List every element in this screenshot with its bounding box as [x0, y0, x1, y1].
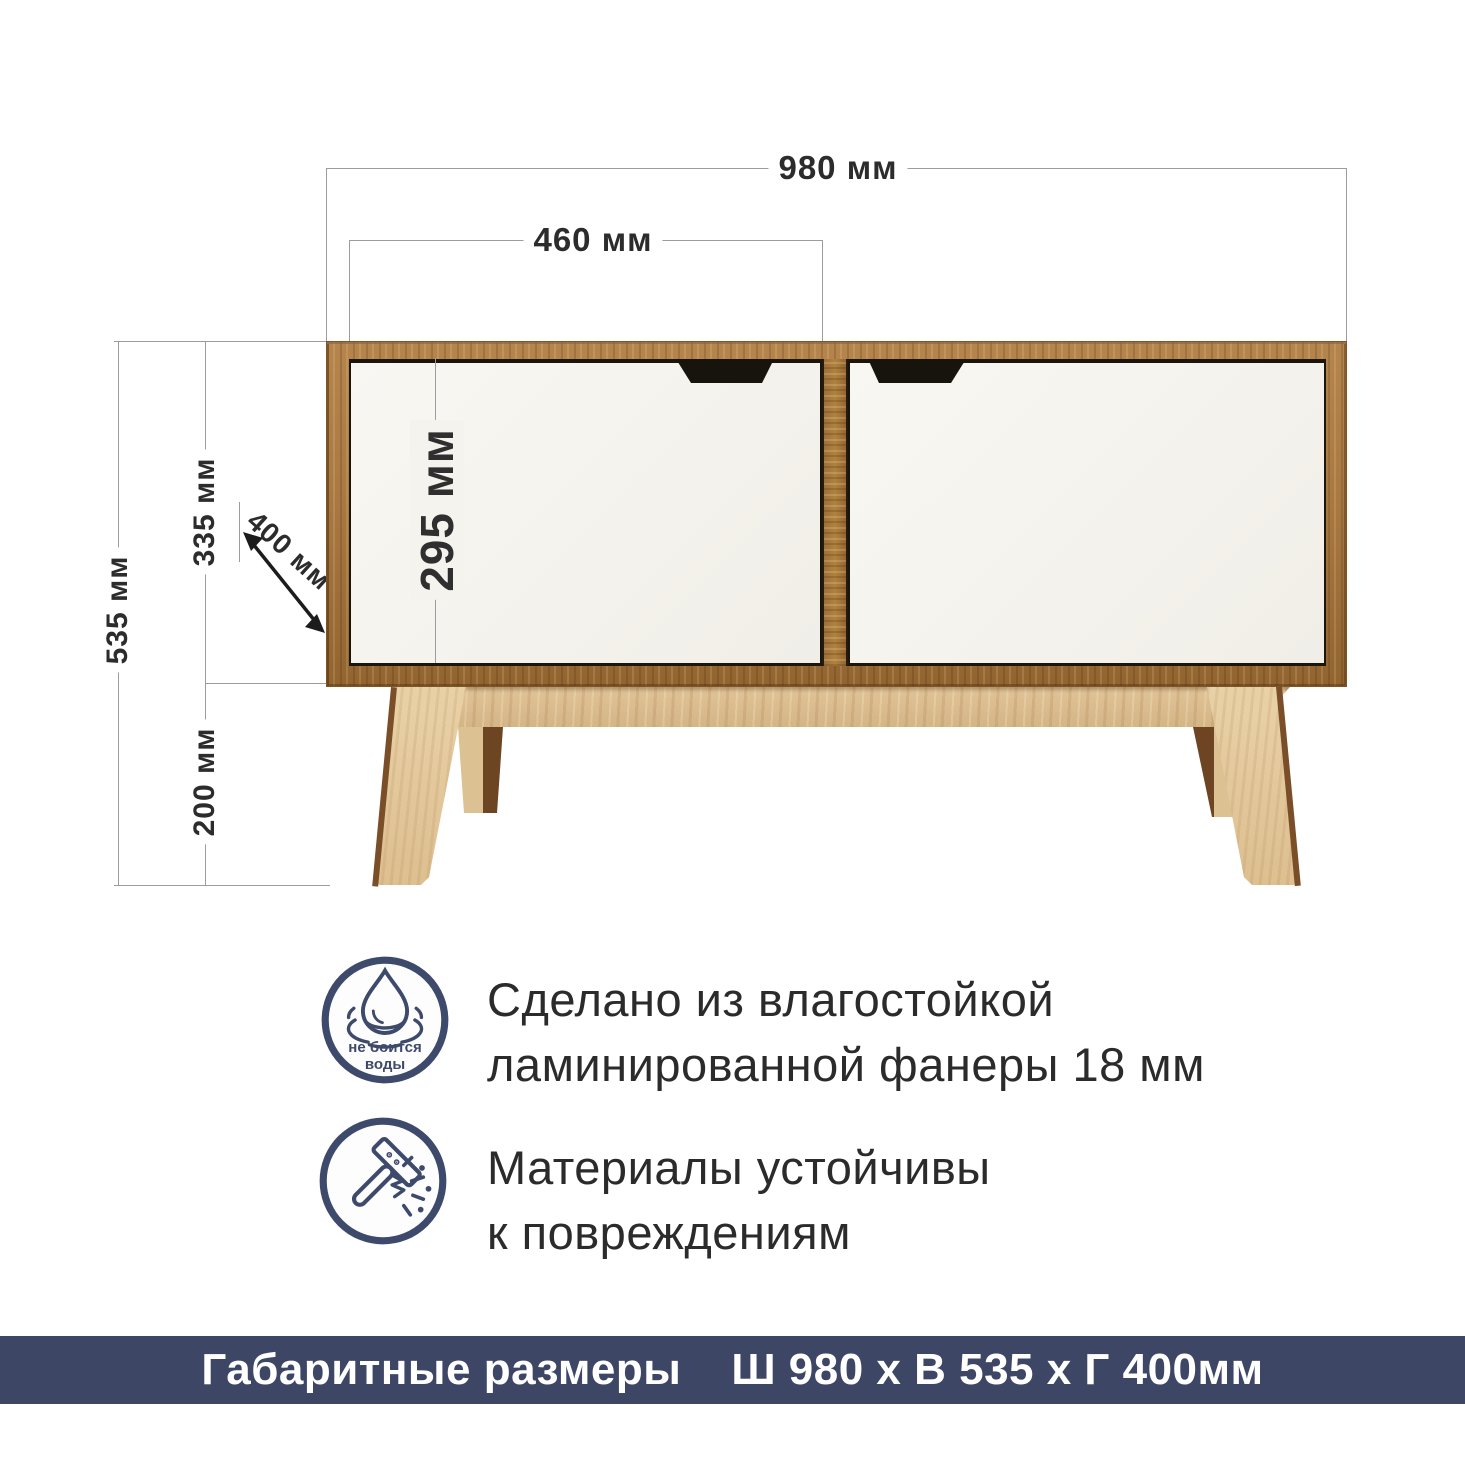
dim-label-body-height: 335 мм	[188, 450, 222, 575]
rear-leg-left	[458, 727, 503, 813]
feature-water-line1: Сделано из влагостойкой	[487, 972, 1054, 1027]
feature-water-line2: ламинированной фанеры 18 мм	[487, 1037, 1205, 1092]
water-badge-line2: воды	[320, 1056, 450, 1073]
water-drop-icon: не боится воды	[320, 955, 450, 1085]
door-right	[850, 363, 1324, 663]
feature-impact-line1: Материалы устойчивы	[487, 1140, 991, 1195]
dim-tick-floor	[114, 885, 330, 886]
dim-tick-top	[114, 341, 326, 342]
dim-tick-total-width-left	[326, 168, 327, 341]
footer-value: Ш 980 х В 535 х Г 400мм	[731, 1345, 1263, 1395]
water-badge-line1: не боится	[320, 1039, 450, 1056]
footer-label: Габаритные размеры	[201, 1345, 681, 1395]
dim-tick-total-width-right	[1346, 168, 1347, 341]
product-infographic: 980 мм 460 мм 535 мм 335 мм 200 мм 400 м…	[0, 0, 1465, 1465]
dim-label-door-width: 460 мм	[523, 221, 662, 259]
cabinet-frame	[326, 341, 1347, 687]
dim-tick-body-bottom	[205, 683, 326, 684]
door-handle-right	[868, 359, 966, 383]
dim-label-leg-height: 200 мм	[188, 720, 222, 845]
apron-panel	[420, 687, 1290, 727]
dim-label-door-height: 295 мм	[410, 420, 464, 600]
dim-tick-door-width-left	[349, 240, 350, 341]
feature-impact-line2: к повреждениям	[487, 1205, 851, 1260]
center-divider	[822, 359, 848, 666]
dim-label-total-height: 535 мм	[101, 548, 135, 673]
footer-banner: Габаритные размеры Ш 980 х В 535 х Г 400…	[0, 1336, 1465, 1404]
door-opening-right	[848, 359, 1326, 666]
door-handle-left	[676, 359, 774, 383]
dim-label-total-width: 980 мм	[768, 149, 907, 187]
hammer-icon	[318, 1116, 448, 1246]
